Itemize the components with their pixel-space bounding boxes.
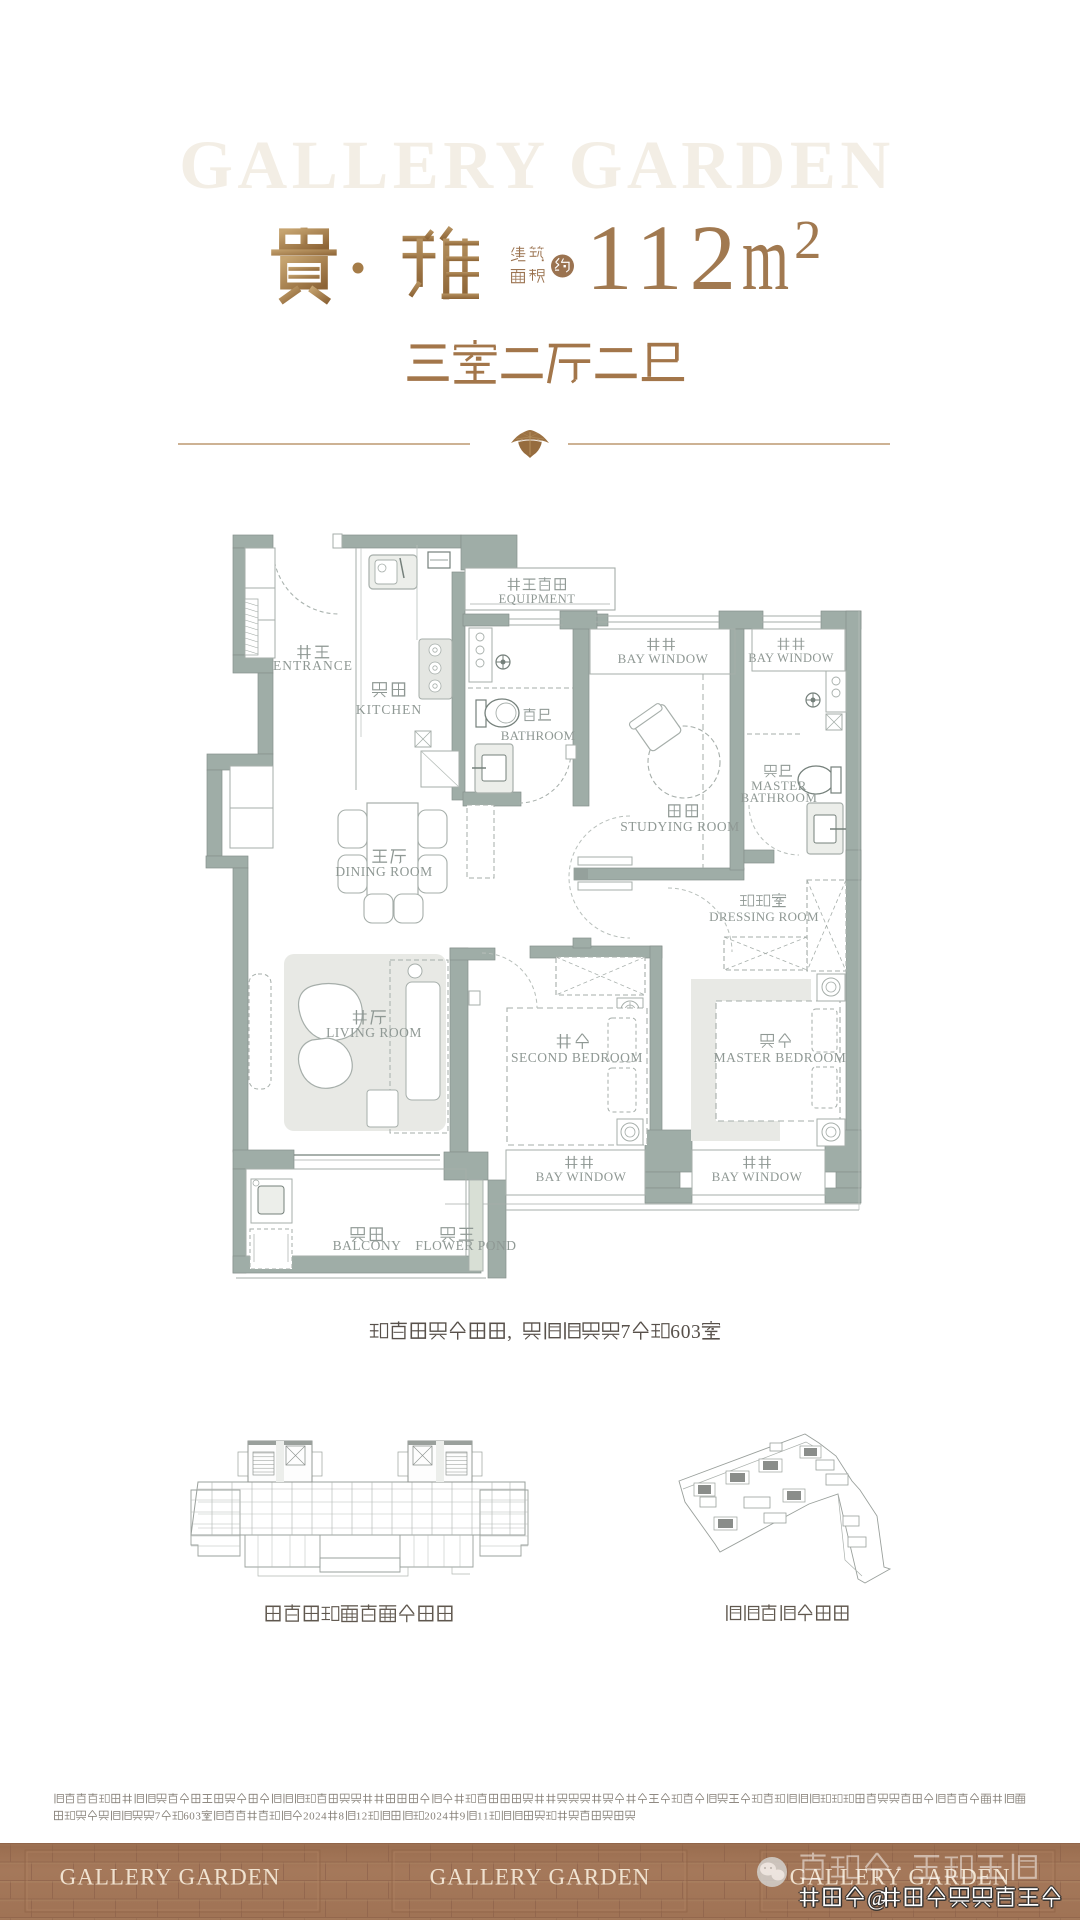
svg-text:1: 1: [356, 1811, 362, 1823]
svg-text:BAY WINDOW: BAY WINDOW: [536, 1169, 627, 1184]
svg-text:2: 2: [315, 1811, 321, 1823]
svg-text:4: 4: [442, 1811, 448, 1823]
svg-text:6: 6: [670, 1322, 680, 1343]
svg-text:DRESSING ROOM: DRESSING ROOM: [709, 909, 819, 924]
svg-text:1: 1: [483, 1811, 489, 1823]
svg-text:0: 0: [681, 1322, 691, 1343]
svg-text:ENTRANCE: ENTRANCE: [273, 658, 353, 673]
svg-text:LIVING ROOM: LIVING ROOM: [326, 1025, 422, 1040]
svg-text:9: 9: [460, 1811, 466, 1823]
svg-text:DINING ROOM: DINING ROOM: [335, 864, 432, 879]
svg-text:112: 112: [586, 207, 743, 310]
svg-text:BAY WINDOW: BAY WINDOW: [618, 651, 709, 666]
svg-text:1: 1: [477, 1811, 483, 1823]
svg-text:3: 3: [195, 1811, 201, 1823]
svg-text:BATHROOM: BATHROOM: [501, 728, 576, 743]
svg-text:@: @: [867, 1885, 887, 1910]
svg-text:BAY WINDOW: BAY WINDOW: [712, 1169, 803, 1184]
svg-text:2: 2: [362, 1811, 368, 1823]
svg-text:2: 2: [794, 209, 822, 270]
svg-text:7: 7: [155, 1811, 161, 1823]
svg-text:BALCONY: BALCONY: [333, 1238, 402, 1253]
svg-text:2: 2: [436, 1811, 442, 1823]
svg-text:KITCHEN: KITCHEN: [356, 702, 422, 717]
svg-text:BATHROOM: BATHROOM: [741, 790, 818, 805]
svg-text:2: 2: [303, 1811, 309, 1823]
svg-text:STUDYING ROOM: STUDYING ROOM: [620, 819, 739, 834]
svg-text:MASTER BEDROOM: MASTER BEDROOM: [714, 1050, 847, 1065]
svg-text:FLOWER POND: FLOWER POND: [415, 1238, 516, 1253]
svg-text:GALLERY GARDEN: GALLERY GARDEN: [430, 1865, 651, 1890]
svg-text:4: 4: [321, 1811, 327, 1823]
svg-text:2: 2: [424, 1811, 430, 1823]
svg-text:0: 0: [189, 1811, 195, 1823]
svg-text:·: ·: [894, 1852, 904, 1885]
svg-text:,: ,: [507, 1322, 512, 1343]
svg-text:SECOND BEDROOM: SECOND BEDROOM: [511, 1050, 643, 1065]
svg-text:3: 3: [691, 1322, 701, 1343]
svg-text:GALLERY GARDEN: GALLERY GARDEN: [60, 1865, 281, 1890]
svg-text:EQUIPMENT: EQUIPMENT: [499, 592, 576, 606]
svg-text:GALLERY GARDEN: GALLERY GARDEN: [179, 127, 895, 203]
svg-text:m: m: [742, 207, 789, 310]
svg-text:8: 8: [339, 1811, 345, 1823]
svg-text:7: 7: [621, 1322, 631, 1343]
svg-text:BAY WINDOW: BAY WINDOW: [748, 651, 834, 665]
svg-text:0: 0: [430, 1811, 436, 1823]
